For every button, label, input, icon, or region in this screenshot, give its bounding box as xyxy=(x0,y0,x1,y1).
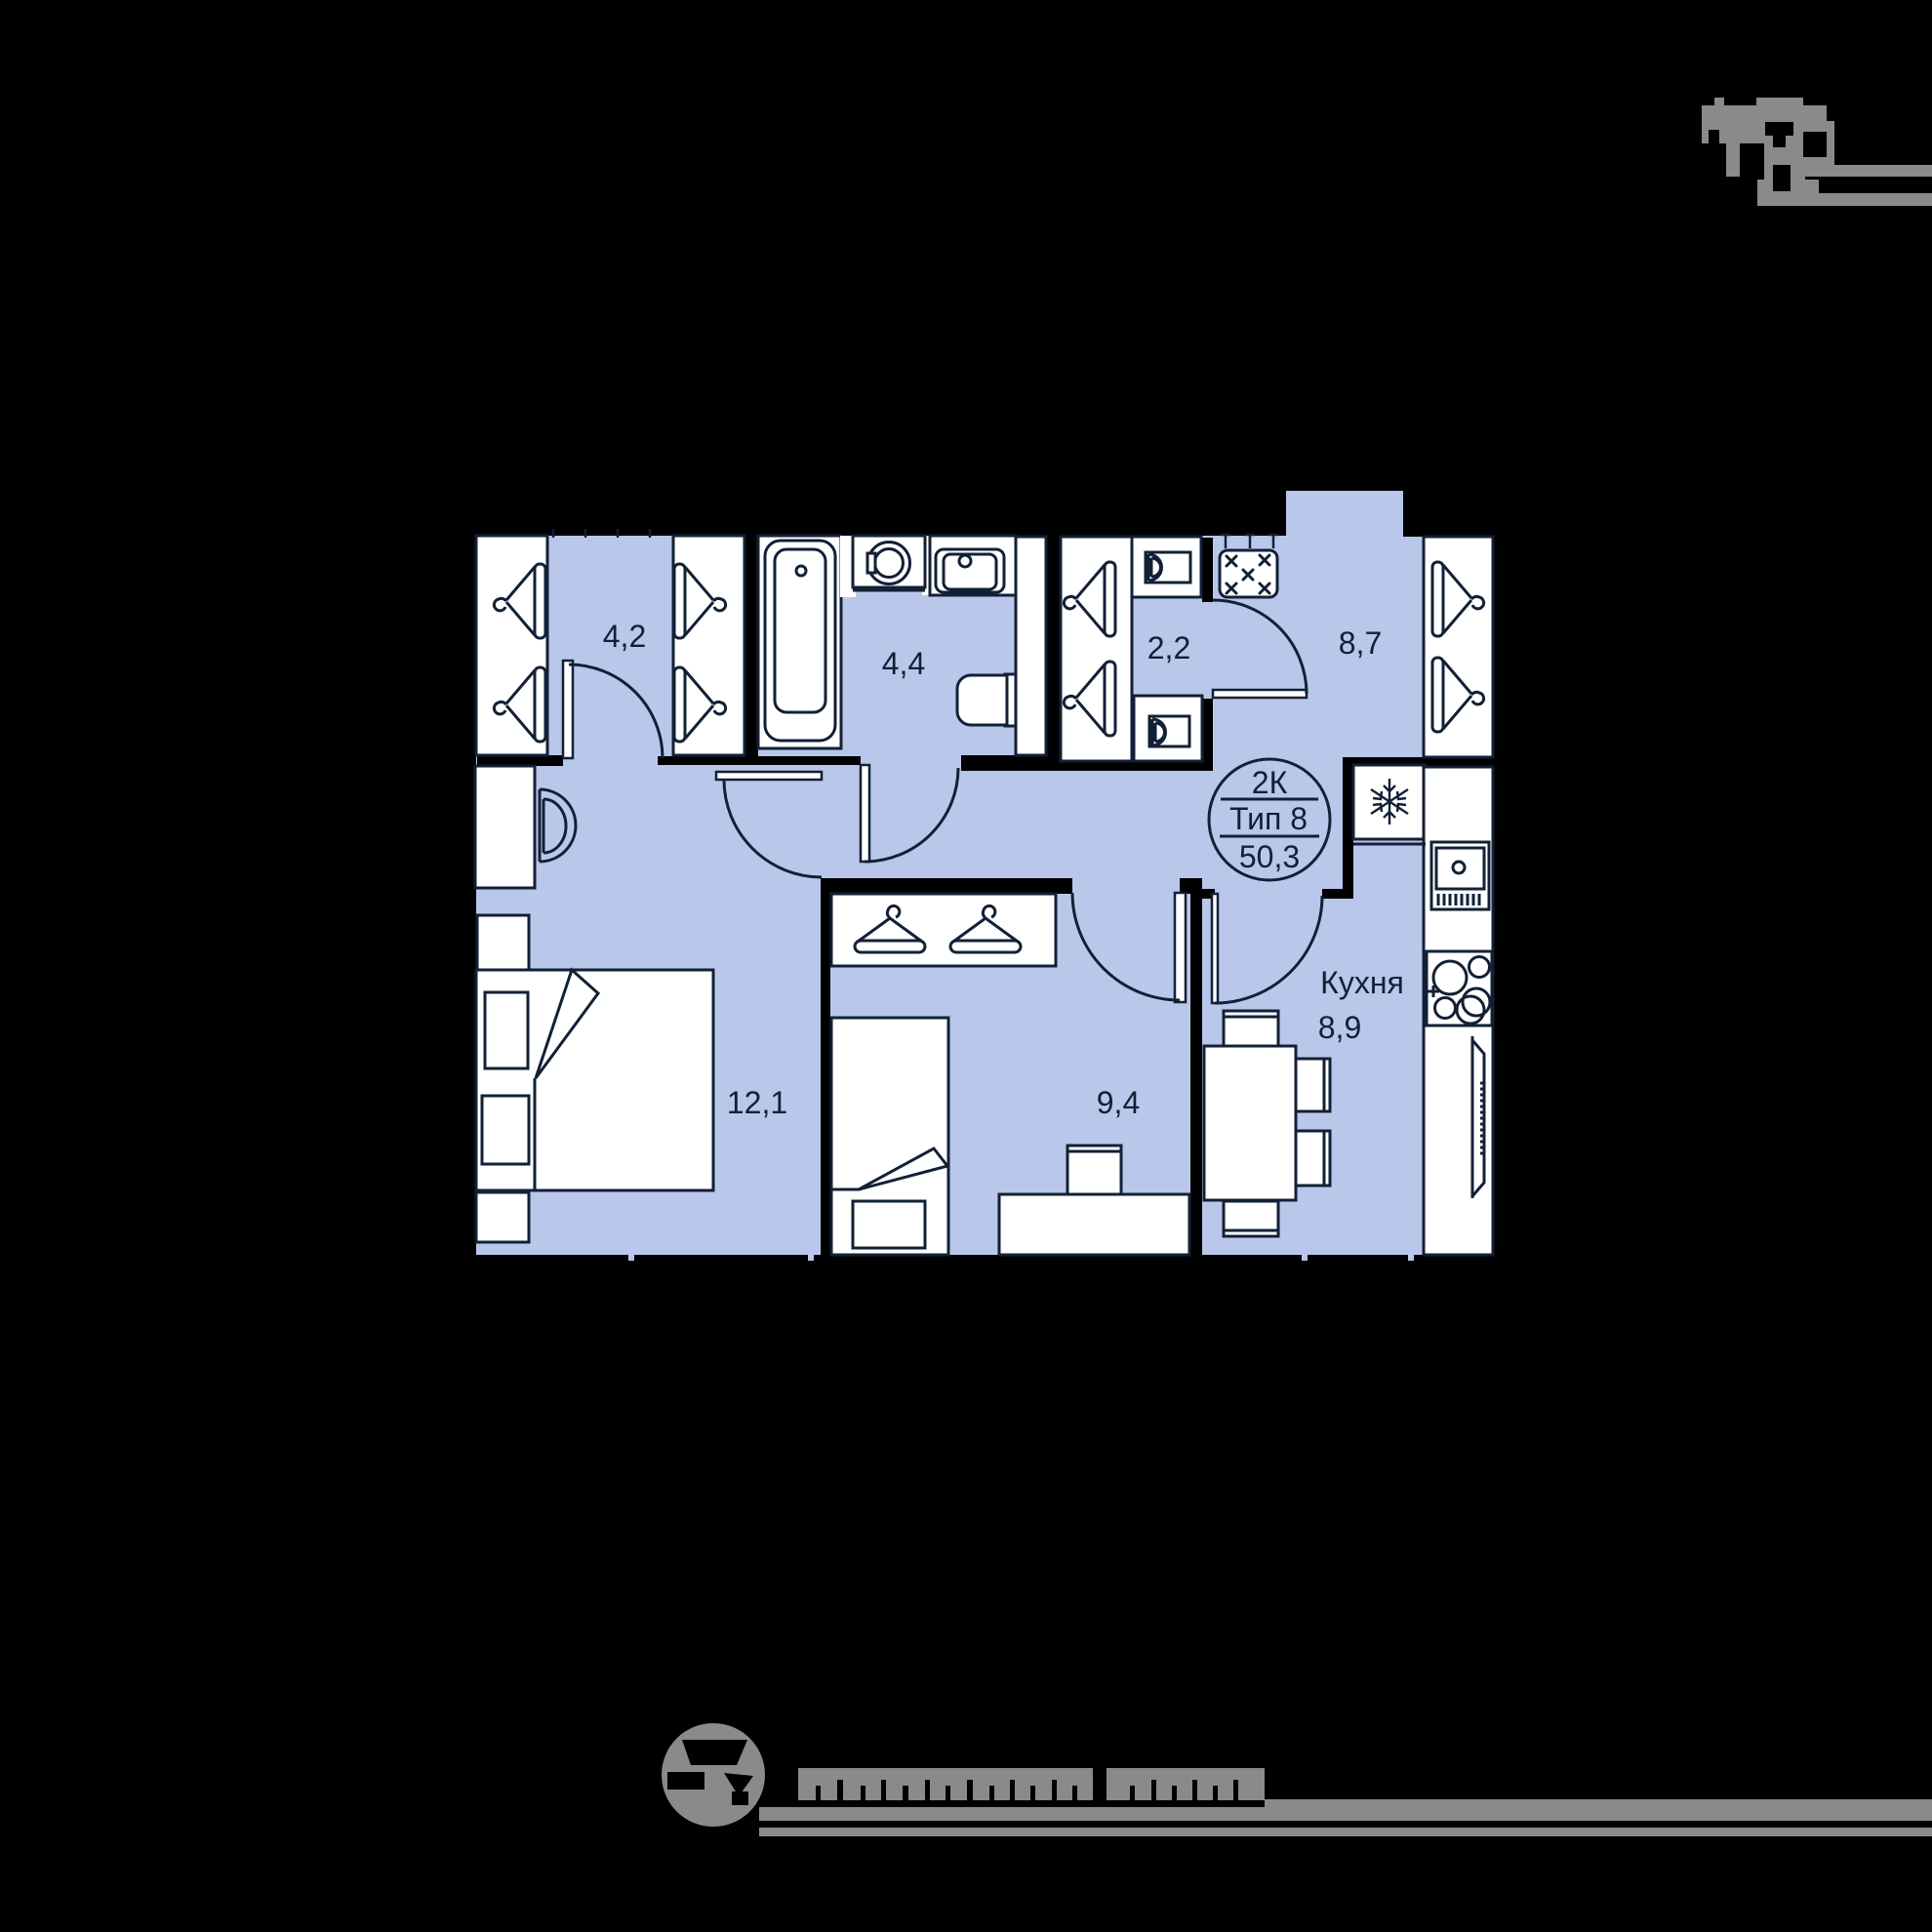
svg-text:Тип 8: Тип 8 xyxy=(1229,801,1308,836)
svg-text:8,7: 8,7 xyxy=(1339,625,1382,661)
svg-text:9,4: 9,4 xyxy=(1097,1085,1140,1120)
svg-text:12,1: 12,1 xyxy=(727,1085,787,1120)
svg-text:Кухня: Кухня xyxy=(1320,965,1404,1000)
svg-text:4,2: 4,2 xyxy=(603,619,646,654)
svg-text:8,9: 8,9 xyxy=(1318,1010,1361,1045)
svg-text:2К: 2К xyxy=(1252,765,1288,800)
svg-text:4,4: 4,4 xyxy=(882,646,925,681)
svg-text:50,3: 50,3 xyxy=(1239,839,1300,874)
svg-text:2,2: 2,2 xyxy=(1147,630,1190,665)
